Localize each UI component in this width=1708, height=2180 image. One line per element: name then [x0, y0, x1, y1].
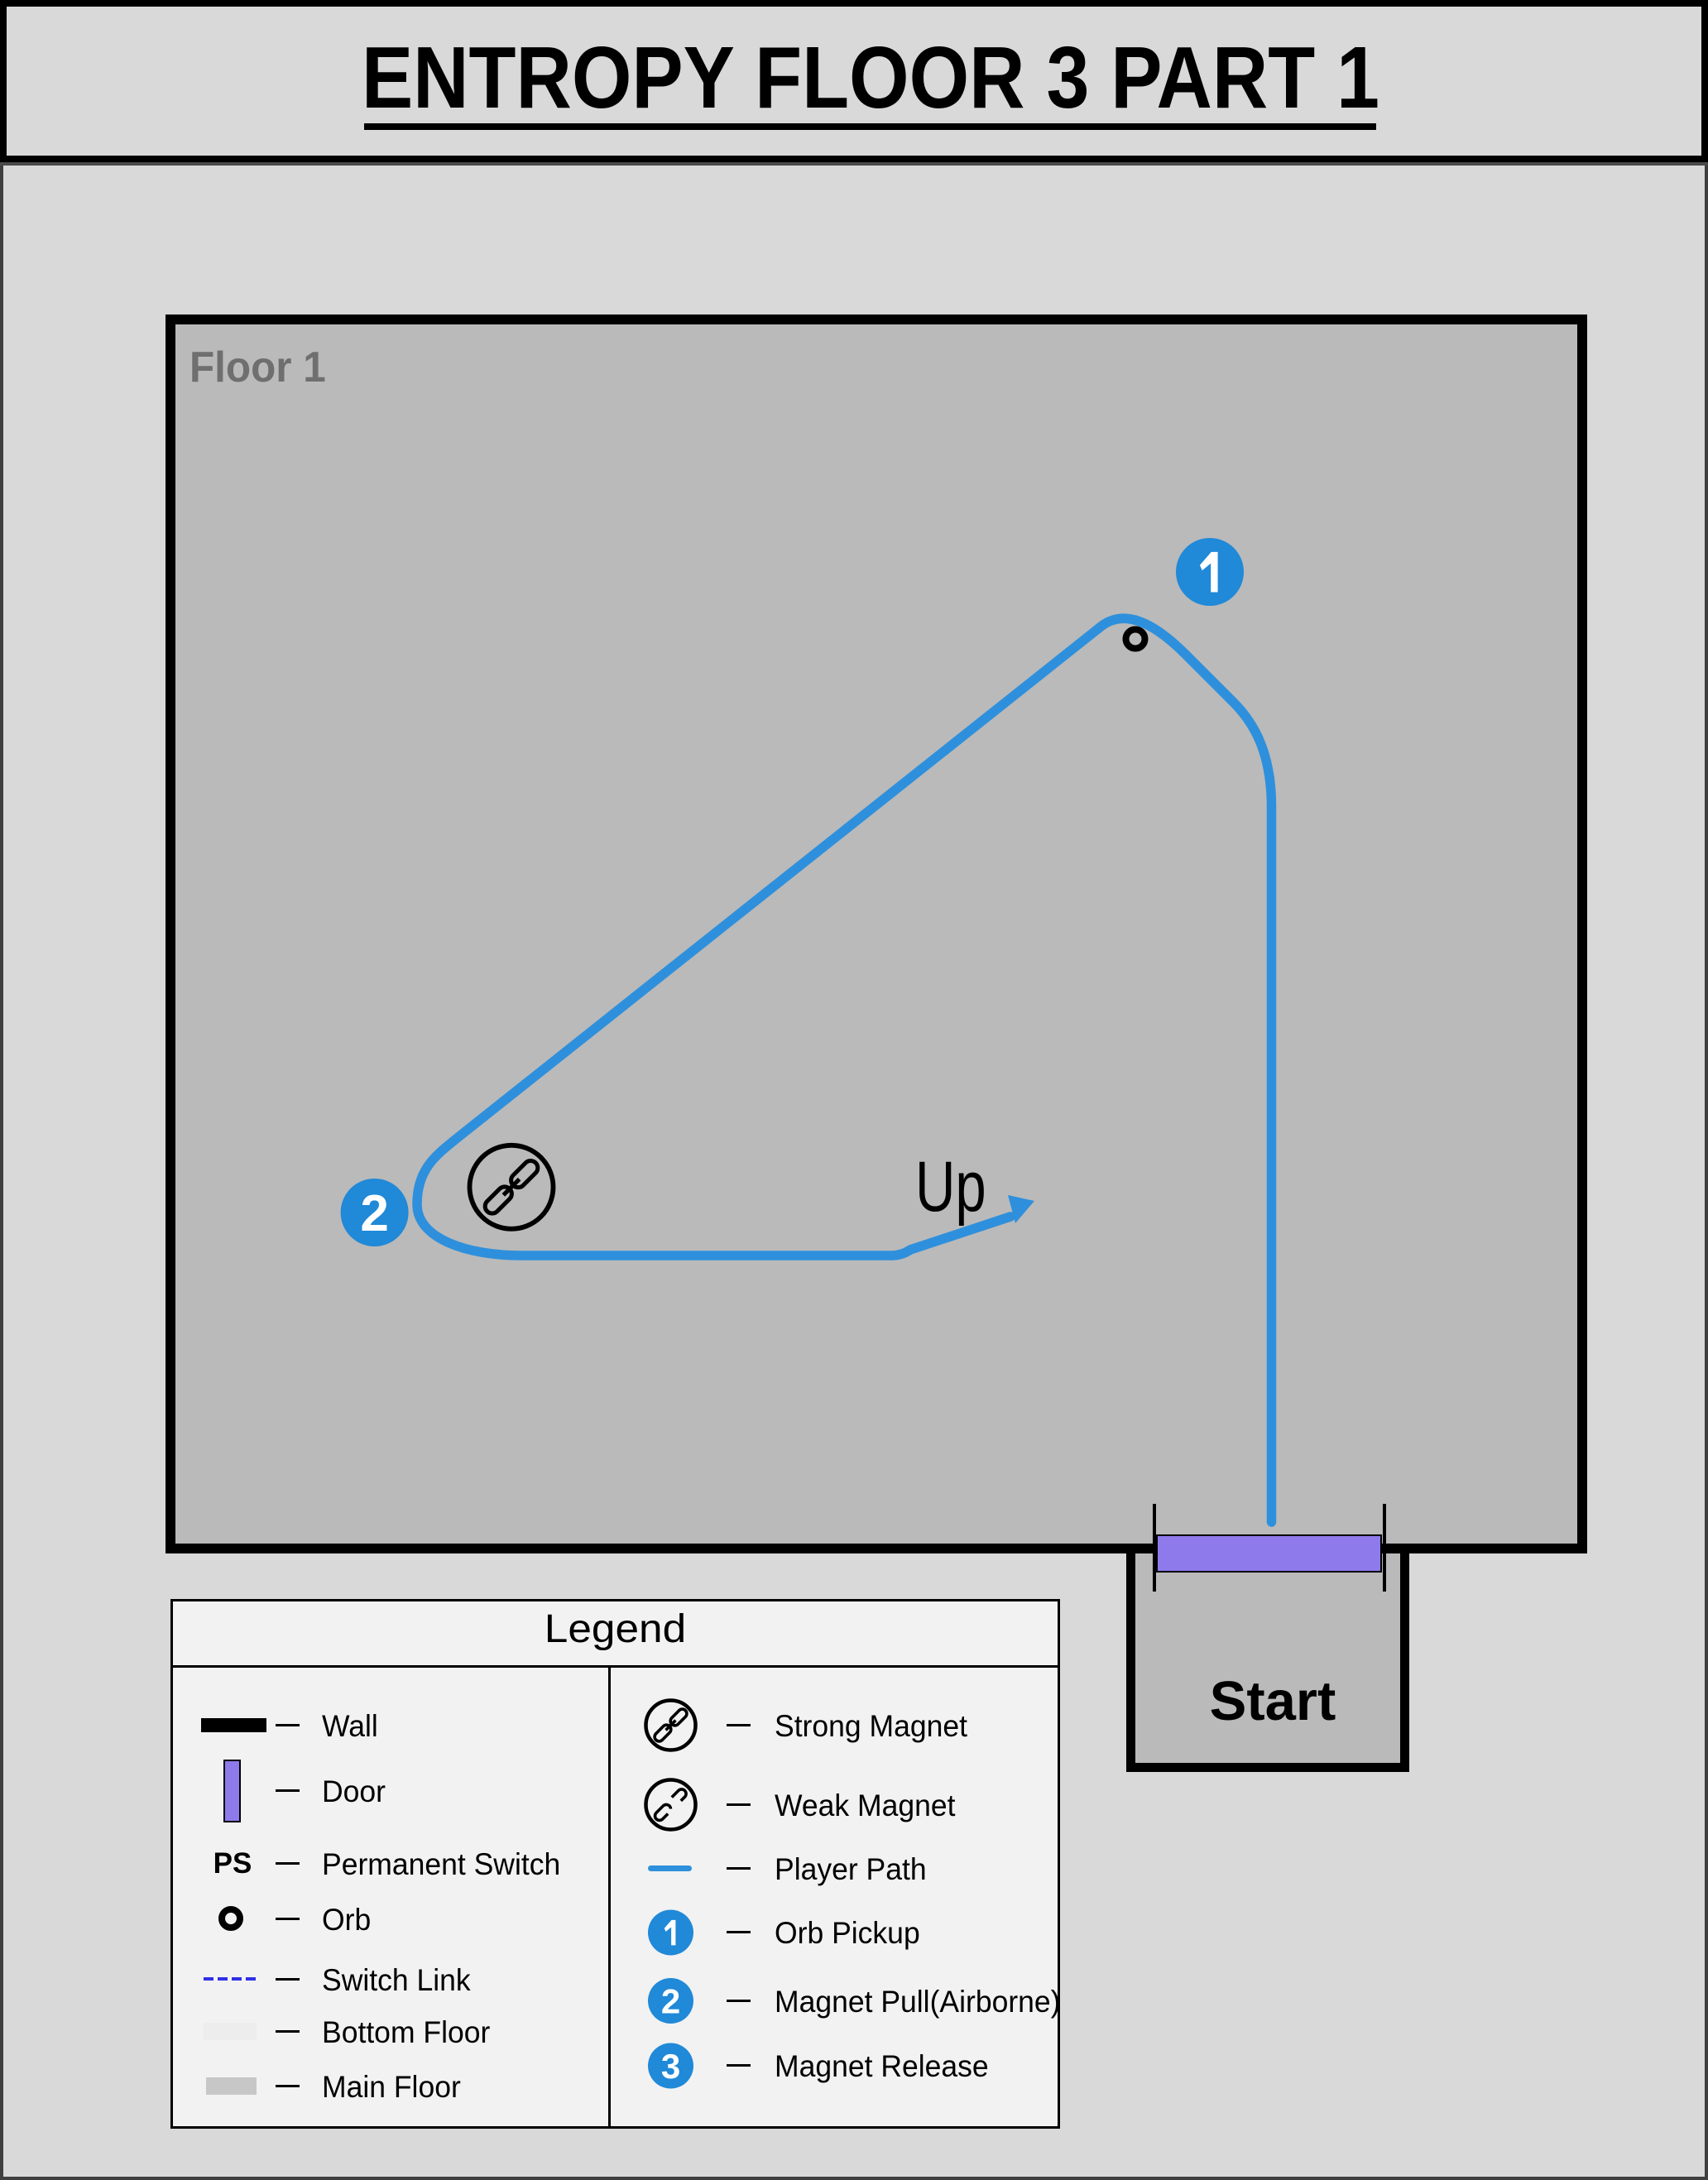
- svg-text:3: 3: [661, 2047, 680, 2086]
- svg-text:2: 2: [661, 1982, 680, 2021]
